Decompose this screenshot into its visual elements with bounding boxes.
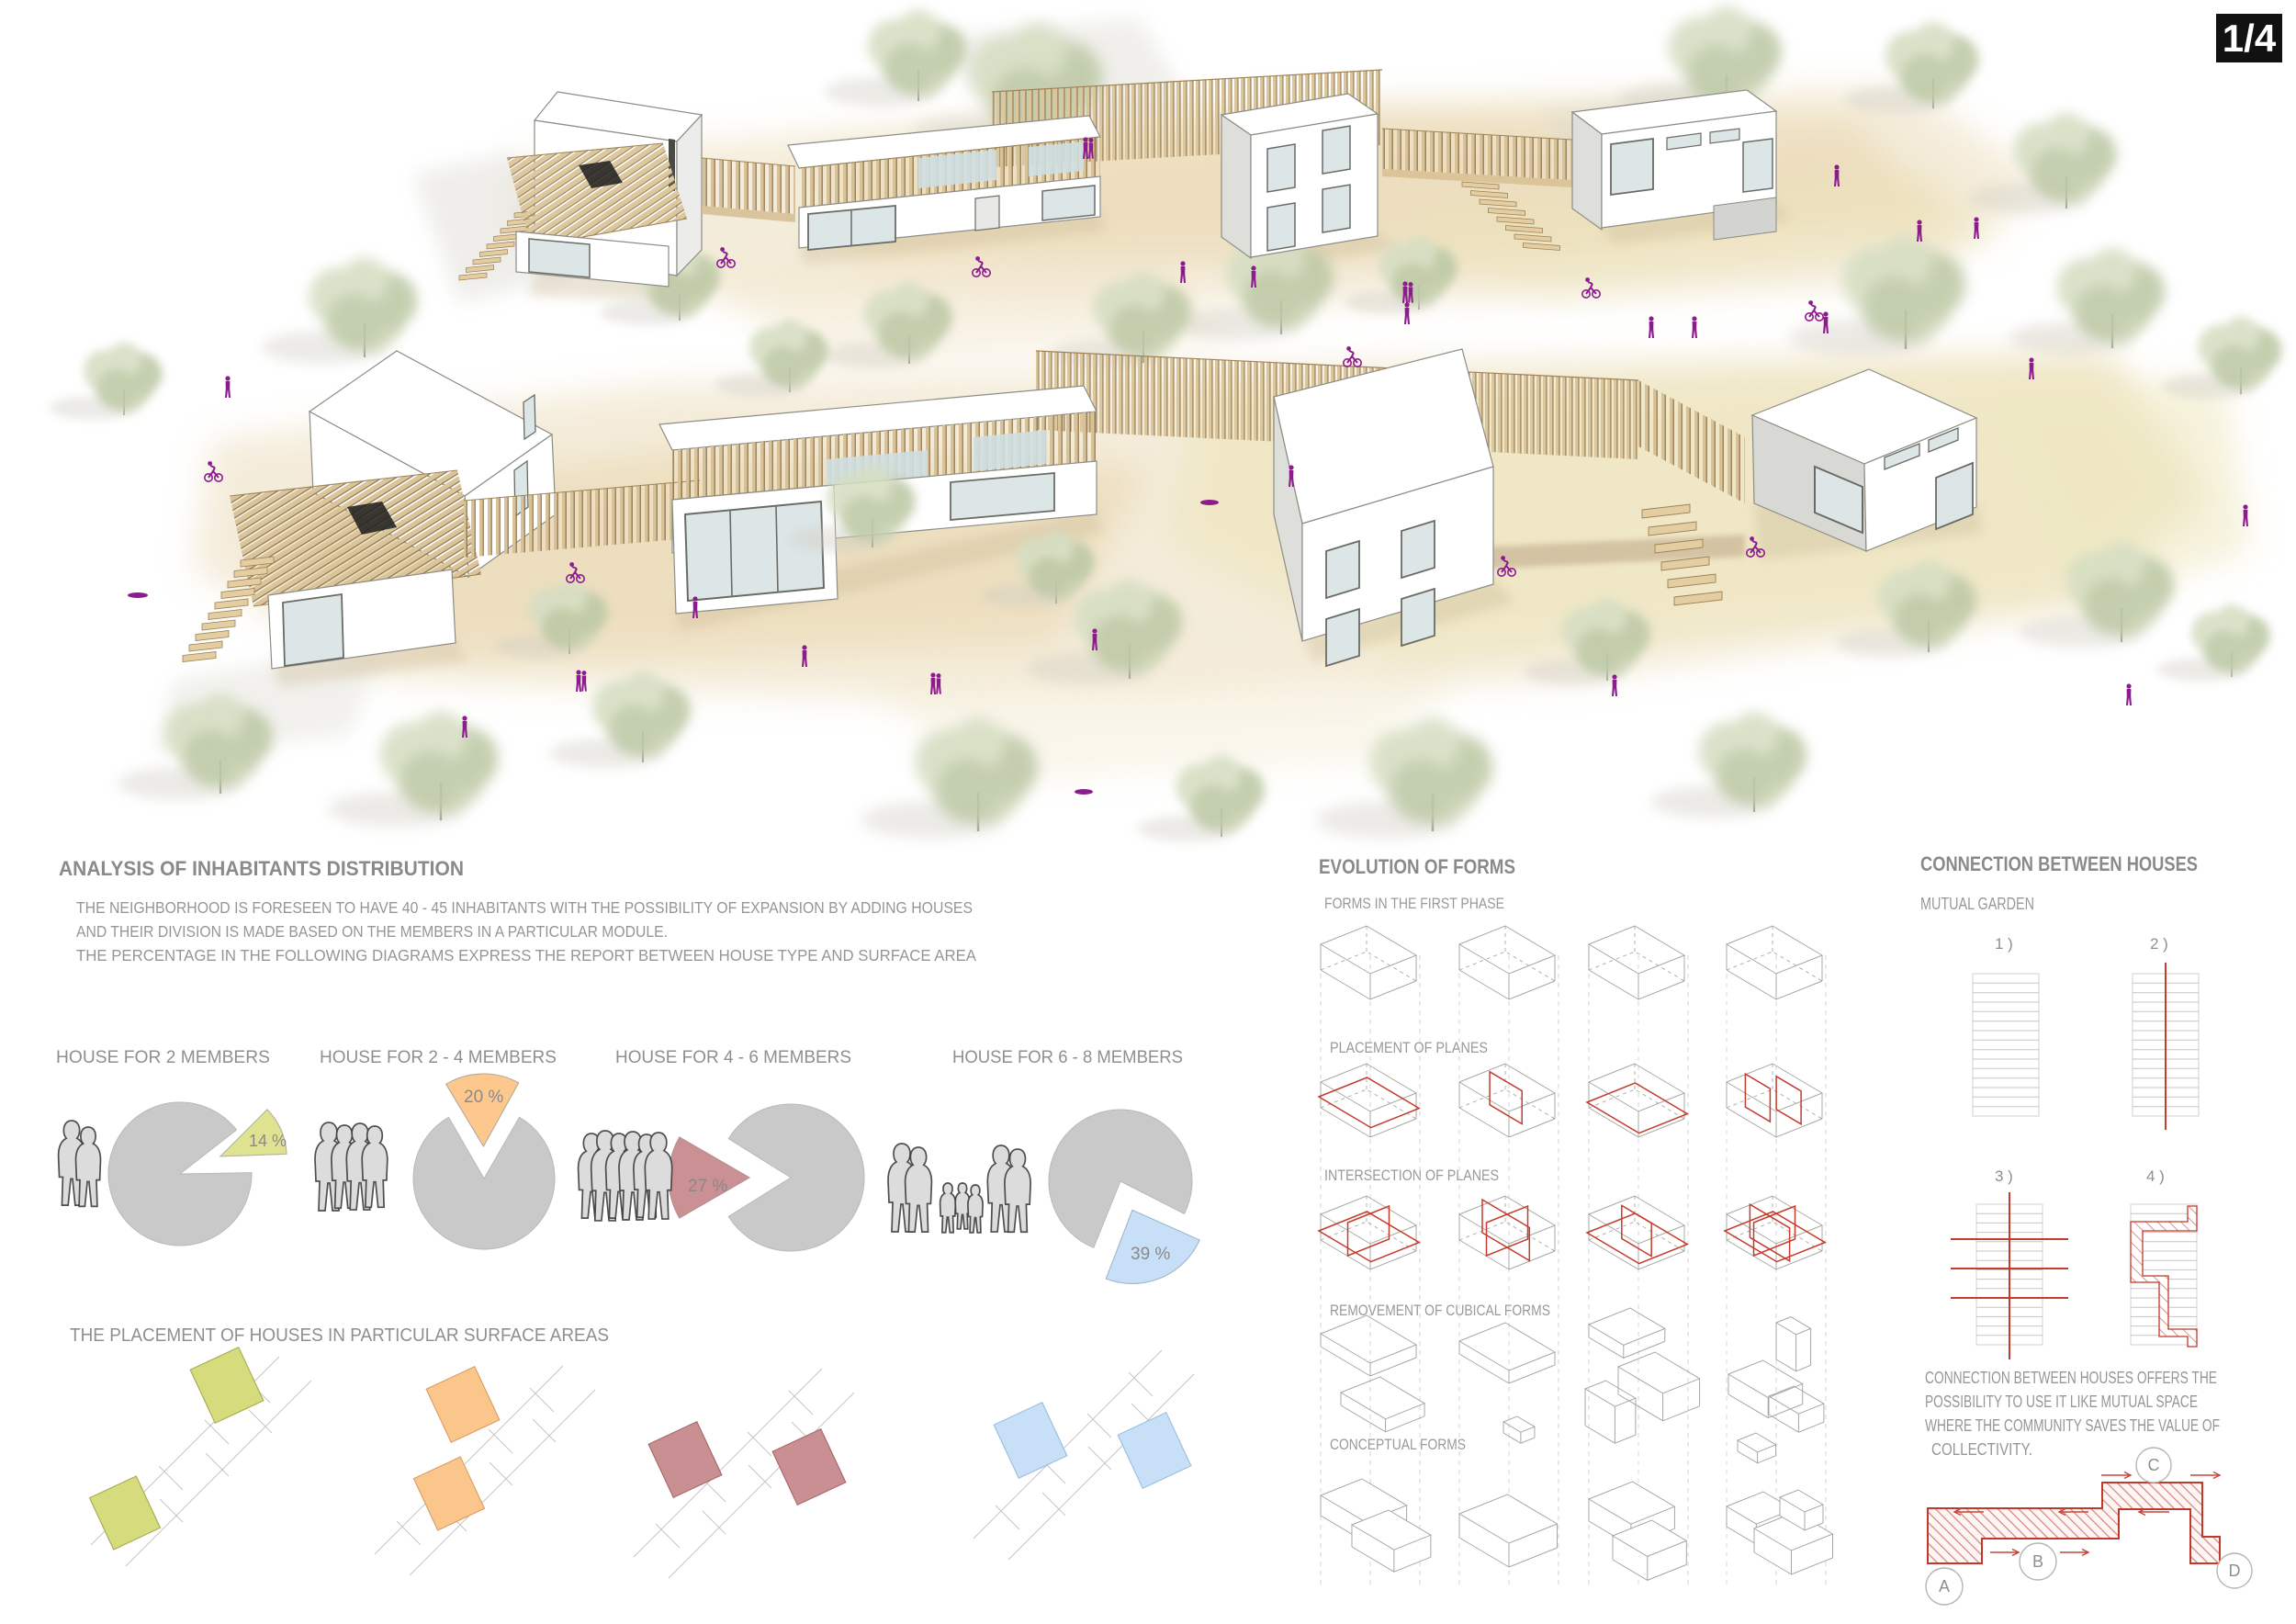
svg-text:HOUSE FOR 2 MEMBERS: HOUSE FOR 2 MEMBERS xyxy=(56,1048,270,1067)
svg-text:CONNECTION BETWEEN HOUSES: CONNECTION BETWEEN HOUSES xyxy=(1920,852,2198,875)
svg-text:HOUSE FOR 6 - 8 MEMBERS: HOUSE FOR 6 - 8 MEMBERS xyxy=(952,1048,1183,1067)
svg-text:COLLECTIVITY.: COLLECTIVITY. xyxy=(1931,1440,2032,1459)
svg-text:20 %: 20 % xyxy=(464,1088,503,1107)
svg-text:THE PERCENTAGE IN THE FOLLOWIN: THE PERCENTAGE IN THE FOLLOWING DIAGRAMS… xyxy=(76,946,976,964)
svg-text:EVOLUTION OF FORMS: EVOLUTION OF FORMS xyxy=(1319,855,1515,878)
svg-text:HOUSE FOR 4 - 6 MEMBERS: HOUSE FOR 4 - 6 MEMBERS xyxy=(615,1048,851,1067)
svg-text:CONCEPTUAL FORMS: CONCEPTUAL FORMS xyxy=(1330,1436,1466,1453)
svg-text:27 %: 27 % xyxy=(688,1177,727,1196)
svg-text:39 %: 39 % xyxy=(1131,1245,1170,1264)
svg-text:THE NEIGHBORHOOD IS FORESEEN T: THE NEIGHBORHOOD IS FORESEEN TO HAVE 40 … xyxy=(76,898,973,917)
svg-text:THE PLACEMENT OF HOUSES IN PAR: THE PLACEMENT OF HOUSES IN PARTICULAR SU… xyxy=(70,1325,609,1346)
svg-text:WHERE THE COMMUNITY SAVES THE: WHERE THE COMMUNITY SAVES THE VALUE OF xyxy=(1925,1416,2220,1435)
svg-text:D: D xyxy=(2229,1562,2241,1580)
svg-text:A: A xyxy=(1939,1577,1950,1596)
svg-text:INTERSECTION OF PLANES: INTERSECTION OF PLANES xyxy=(1324,1167,1499,1184)
svg-text:HOUSE FOR 2 - 4 MEMBERS: HOUSE FOR 2 - 4 MEMBERS xyxy=(320,1048,557,1067)
svg-text:MUTUAL GARDEN: MUTUAL GARDEN xyxy=(1920,895,2034,913)
svg-text:POSSIBILITY TO USE IT LIKE MUT: POSSIBILITY TO USE IT LIKE MUTUAL SPACE xyxy=(1925,1393,2198,1411)
svg-text:2 ): 2 ) xyxy=(2150,935,2168,953)
svg-text:C: C xyxy=(2148,1456,2160,1474)
svg-text:ANALYSIS OF INHABITANTS DISTRI: ANALYSIS OF INHABITANTS DISTRIBUTION xyxy=(59,857,464,880)
svg-text:3 ): 3 ) xyxy=(1995,1167,2013,1185)
svg-text:AND THEIR DIVISION IS MADE BAS: AND THEIR DIVISION IS MADE BASED ON THE … xyxy=(76,922,668,941)
svg-text:1/4: 1/4 xyxy=(2223,17,2277,60)
svg-text:4 ): 4 ) xyxy=(2146,1167,2165,1185)
svg-text:CONNECTION BETWEEN HOUSES OFFE: CONNECTION BETWEEN HOUSES OFFERS THE xyxy=(1925,1369,2217,1387)
svg-text:B: B xyxy=(2032,1552,2043,1571)
svg-text:14 %: 14 % xyxy=(249,1132,287,1150)
svg-text:PLACEMENT OF PLANES: PLACEMENT OF PLANES xyxy=(1330,1039,1488,1056)
svg-text:FORMS IN THE FIRST PHASE: FORMS IN THE FIRST PHASE xyxy=(1324,895,1504,912)
svg-text:1 ): 1 ) xyxy=(1995,935,2013,953)
